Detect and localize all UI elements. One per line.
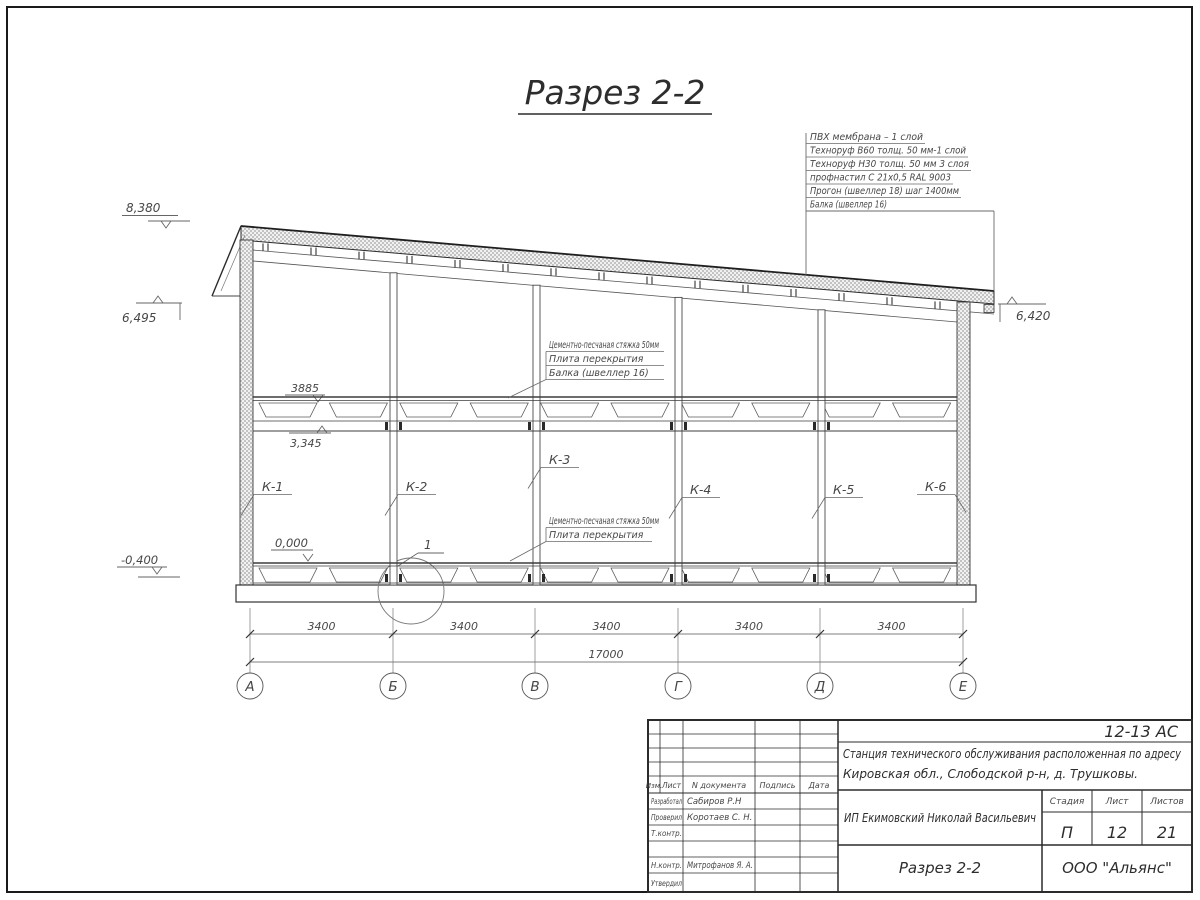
column-label: К-6 [925,479,946,494]
column-label: К-2 [406,479,427,494]
tb-sheets-label: Листов [1149,797,1184,807]
floor-note-upper: Цементно-песчаная стяжка 50ммПлита перек… [508,340,664,398]
slab-bearing-mark [385,574,388,582]
column [675,297,682,585]
column [533,285,540,585]
bay-dimension: 3400 [735,620,763,633]
tb-col-header: Подпись [760,781,796,790]
slab-bearing-mark [670,422,673,430]
tb-project-name-1: Станция технического обслуживания распол… [843,747,1182,761]
tb-project-name-2: Кировская обл., Слободской р-н, д. Трушк… [843,767,1138,781]
slab-rib [681,568,739,582]
tb-stage-label: Стадия [1050,797,1085,807]
slab-rib [752,403,810,417]
slab-rib [259,403,317,417]
elev-arrow-down [313,395,323,402]
floor-note-text: Плита перекрытия [549,530,644,541]
slab-bearing-mark [399,574,402,582]
title-block-texts: Изм.ЛистN документаПодписьДатаРазработал… [646,781,830,888]
tb-name: Коротаев С. Н. [687,813,752,823]
slab-bearing-mark [528,574,531,582]
tb-sheet-label: Лист [1105,797,1130,807]
slab-bearing-mark [684,574,687,582]
slab-rib [681,403,739,417]
wall-right [957,302,970,585]
total-dimension: 17000 [589,648,624,661]
elevation-eave-right: 6,420 [998,297,1051,323]
elevation-ridge: 8,380 [122,201,190,228]
slab-bearing-mark [813,574,816,582]
elevation-value: 6,495 [122,311,156,325]
elevation-value: 3,345 [290,437,322,450]
gable-fascia [212,226,241,296]
slab-rib [541,403,599,417]
axis-letter: В [530,679,539,695]
tb-client: ИП Екимовский Николай Васильевич [844,810,1036,825]
slab-bearing-mark [813,422,816,430]
column-label: К-4 [690,482,711,497]
tb-role: Н.контр. [651,861,682,870]
floor-note-text: Цементно-песчаная стяжка 50мм [549,340,659,351]
roof-end-cap [984,305,994,313]
axis-letter: Д [814,679,826,695]
floor-note-text: Плита перекрытия [549,354,644,365]
slab-rib [611,568,669,582]
bay-dimension: 3400 [878,620,906,633]
roof-layer-text: Балка (швеллер 16) [810,200,887,211]
slab-rib [893,403,951,417]
slab-bearing-mark [827,422,830,430]
elev-arrow-up [1007,297,1017,304]
bay-dimension: 3400 [593,620,621,633]
elev-arrow-up [153,296,163,303]
axis-letter: Б [388,679,397,695]
floor-note-lower: Цементно-песчаная стяжка 50ммПлита перек… [510,516,659,561]
note-leader [510,542,546,562]
elev-arrow-down [161,221,171,228]
roof-purlin-ticks [263,243,940,308]
slab-rib [470,568,528,582]
tb-role: Проверил [651,813,682,822]
slab-bearing-mark [399,422,402,430]
slab-bearing-mark [528,422,531,430]
tb-col-header: N документа [692,781,746,790]
elevation-value: 6,420 [1016,309,1051,323]
axis-letter: Е [959,679,968,695]
tb-name: Митрофанов Я. А. [687,861,753,871]
drawing-sheet: Разрез 2-2 1 8,380 6,495 6,420 3 [0,0,1200,900]
elev-arrow-down [152,567,162,574]
slab-rib [611,403,669,417]
slab-rib [541,568,599,582]
bay-dimension: 3400 [308,620,336,633]
elevation-value: -0,400 [121,553,158,567]
elevation-floor: 0,000 [271,536,313,561]
tb-col-header: Лист [661,781,682,790]
tb-doc-code: 12-13 АС [1104,722,1179,741]
tb-sheets-total: 21 [1157,823,1177,842]
floor-note-text: Балка (швеллер 16) [549,368,649,379]
slab-bearing-mark [684,422,687,430]
slab-rib [822,568,880,582]
page-title: Разрез 2-2 [525,73,706,112]
slab-rib [470,403,528,417]
floor-note-text: Цементно-песчаная стяжка 50мм [549,516,659,527]
column [818,310,825,585]
tb-role: Т.контр. [651,829,682,838]
elevation-ground: -0,400 [117,553,180,577]
slab-bearing-mark [670,574,673,582]
elev-arrow-up [317,426,327,433]
axis-letter: Г [674,679,683,695]
column-label: К-3 [549,452,570,467]
wall-left [240,240,253,585]
foundation [236,585,976,602]
slab-bearing-mark [827,574,830,582]
axis-letter: А [244,679,254,695]
tb-drawing-name: Разрез 2-2 [899,859,981,877]
column-label: К-1 [262,479,283,494]
tb-col-header: Дата [808,781,830,790]
tb-stage-value: П [1061,823,1073,842]
slab-rib [400,568,458,582]
tb-name: Сабиров Р.Н [687,797,742,807]
slab-bearing-mark [542,422,545,430]
tb-sheet-number: 12 [1107,823,1127,842]
column [390,273,397,585]
bay-dimension: 3400 [450,620,478,633]
column-label: К-5 [833,482,854,497]
slab-bearing-mark [542,574,545,582]
slab-rib [893,568,951,582]
roof-layers-note: ПВХ мембрана – 1 слойТехноруф В60 толщ. … [806,131,971,211]
elevation-value: 0,000 [275,536,308,550]
roof-layer-text: профнастил С 21х0,5 RAL 9003 [810,173,951,184]
slab-rib [259,568,317,582]
roof-layer-text: ПВХ мембрана – 1 слой [810,131,923,143]
elev-arrow-down [303,554,313,561]
detail-label: 1 [424,538,432,552]
elevation-eave-left: 6,495 [122,296,182,325]
roof-layer-text: Техноруф В60 толщ. 50 мм-1 слой [810,146,966,157]
tb-role: Разработал [651,797,682,806]
slab-bearing-mark [385,422,388,430]
section-drawing: Разрез 2-2 1 8,380 6,495 6,420 3 [0,0,1200,900]
slab-rib [822,403,880,417]
mark-slab-top: 3885 [285,382,325,402]
roof-layer-text: Техноруф Н30 толщ. 50 мм 3 слоя [810,159,969,170]
column-labels: К-1К-2К-3К-4К-5К-6 [241,452,966,519]
mark-slab-bottom: 3,345 [289,426,331,450]
roof-layer-text: Прогон (швеллер 18) шаг 1400мм [810,186,959,197]
tb-col-header: Изм. [646,782,662,790]
tb-role: Утвердил [651,879,682,888]
slab-rib [752,568,810,582]
slab-rib [329,568,387,582]
elevation-value: 8,380 [126,201,161,215]
slab-rib [329,403,387,417]
slab-rib [400,403,458,417]
elevation-value: 3885 [291,382,319,395]
dimensions-axes: АБВГДЕ3400340034003400340017000 [237,608,976,699]
tb-organization: ООО "Альянс" [1062,859,1172,877]
